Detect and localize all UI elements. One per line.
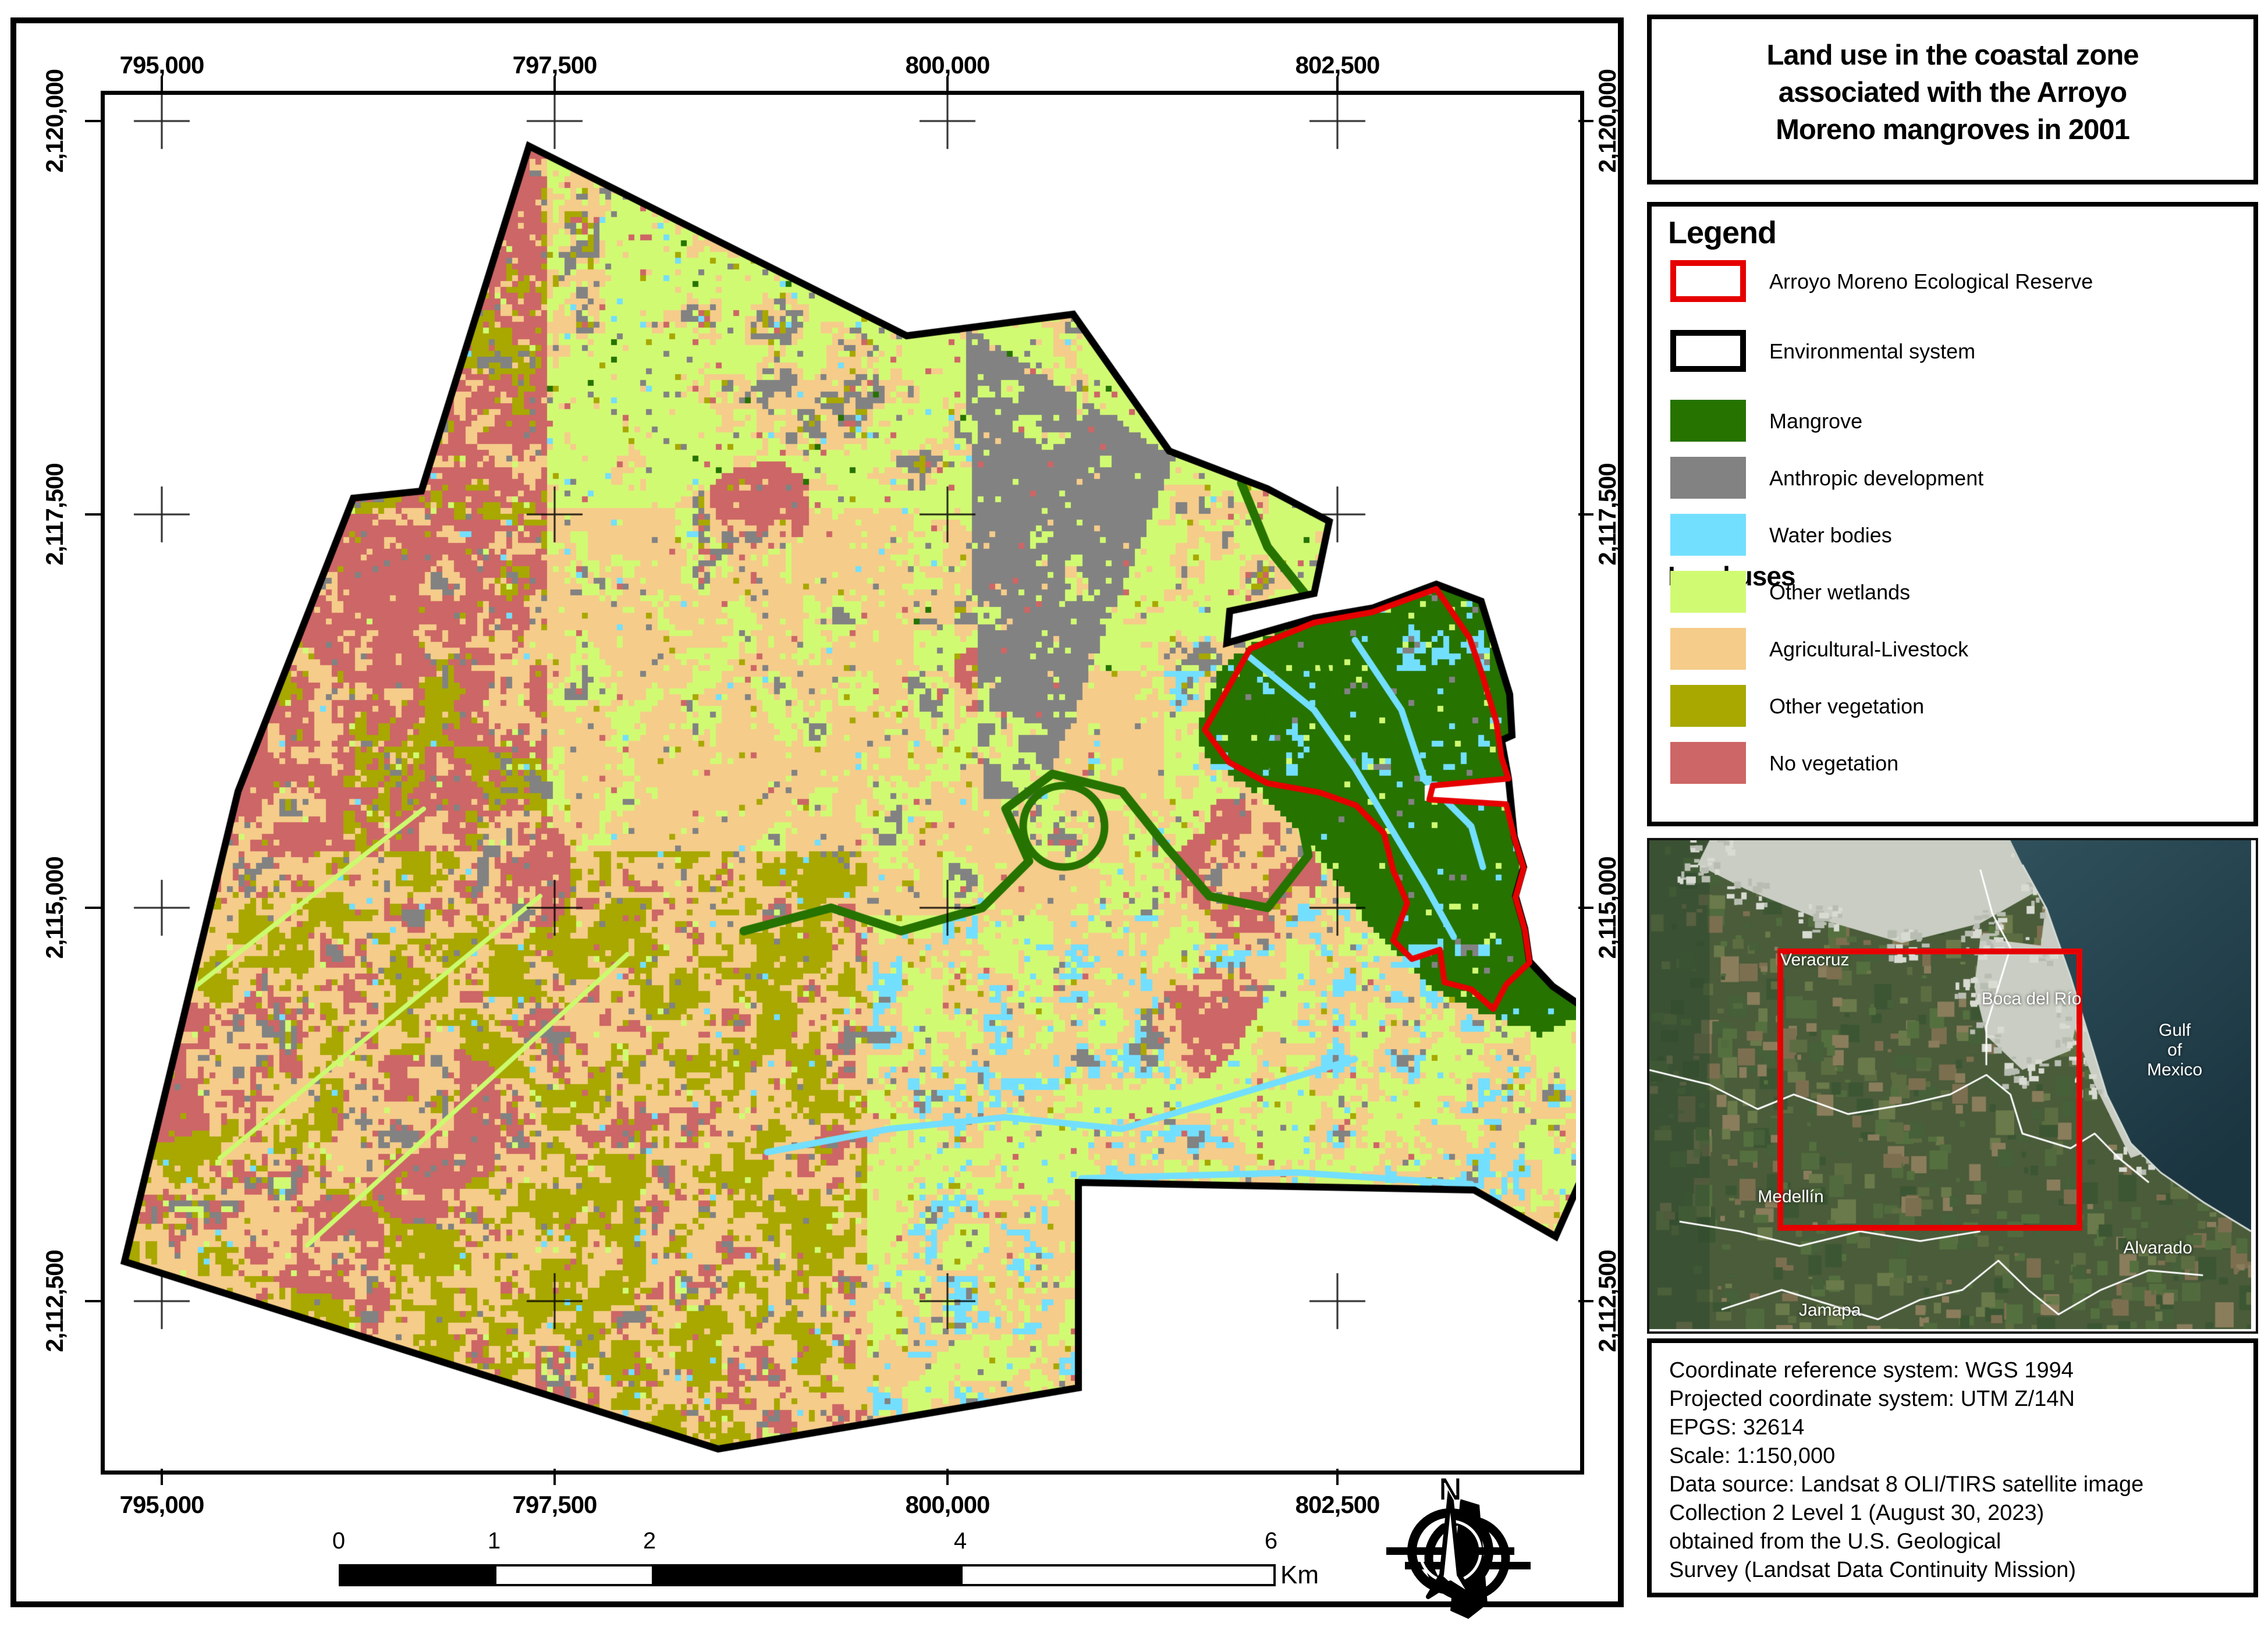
y-axis-label-right: 2,112,500 xyxy=(1593,1250,1621,1352)
legend-item-label: Other vegetation xyxy=(1769,694,1924,719)
x-axis-label-bottom: 795,000 xyxy=(120,1491,204,1519)
scale-bar-unit: Km xyxy=(1280,1561,1319,1590)
graticule-tick xyxy=(946,77,949,92)
inset-place-label: Medellín xyxy=(1758,1187,1823,1207)
y-axis-label-right: 2,115,000 xyxy=(1593,857,1621,959)
credits-line: EPGS: 32614 xyxy=(1669,1415,1804,1440)
page-title-line: Land use in the coastal zone xyxy=(1652,37,2253,74)
legend-item: Arroyo Moreno Ecological Reserve xyxy=(1670,260,2241,303)
y-axis-label-left: 2,112,500 xyxy=(41,1250,69,1352)
legend-item: Anthropic development xyxy=(1670,457,2241,500)
credits-line: obtained from the U.S. Geological xyxy=(1669,1529,2001,1554)
y-axis-label-right: 2,120,000 xyxy=(1593,69,1621,173)
scale-bar-segment xyxy=(652,1566,963,1584)
scale-bar-segment xyxy=(496,1566,652,1584)
page-title-line: Moreno mangroves in 2001 xyxy=(1652,111,2253,148)
legend-swatch-outline xyxy=(1670,330,1746,372)
scale-bar-segment xyxy=(963,1566,1273,1584)
legend-item: Water bodies xyxy=(1670,514,2241,557)
legend-swatch-fill xyxy=(1670,514,1746,556)
scale-bar-outline xyxy=(339,1564,1276,1586)
y-axis-label-left: 2,117,500 xyxy=(41,463,69,566)
legend-item-label: Agricultural-Livestock xyxy=(1769,637,1968,662)
graticule-tick xyxy=(553,77,556,92)
legend-item: Agricultural-Livestock xyxy=(1670,628,2241,671)
graticule-tick xyxy=(161,1469,163,1485)
scale-bar-number: 1 xyxy=(488,1528,501,1554)
credits-line: Data source: Landsat 8 OLI/TIRS satellit… xyxy=(1669,1472,2143,1497)
graticule-tick xyxy=(85,907,102,909)
credits-line: Projected coordinate system: UTM Z/14N xyxy=(1669,1387,2075,1412)
legend-item: No vegetation xyxy=(1670,742,2241,785)
legend-item-label: Anthropic development xyxy=(1769,466,1983,491)
main-map-panel: 795,000795,000797,500797,500800,000800,0… xyxy=(10,17,1624,1607)
legend-item-label: Water bodies xyxy=(1769,523,1892,548)
graticule-tick xyxy=(1336,77,1339,92)
graticule-tick xyxy=(161,77,163,92)
scale-bar-number: 4 xyxy=(954,1528,967,1554)
graticule-tick xyxy=(85,1300,102,1302)
x-axis-label-top: 795,000 xyxy=(120,51,204,79)
inset-place-label: Boca del Río xyxy=(1982,989,2082,1009)
legend-swatch-fill xyxy=(1670,571,1746,613)
legend-box: Legend Arroyo Moreno Ecological ReserveE… xyxy=(1647,202,2258,826)
inset-place-label: Veracruz xyxy=(1780,950,1849,970)
inset-locator-map: VeracruzBoca del RíoGulf of MexicoMedell… xyxy=(1647,838,2258,1334)
legend-item: Environmental system xyxy=(1670,330,2241,373)
graticule-tick xyxy=(1578,120,1593,122)
legend-swatch-fill xyxy=(1670,628,1746,670)
graticule-tick xyxy=(85,120,102,122)
scale-bar-segment xyxy=(341,1566,496,1584)
graticule-tick xyxy=(553,1469,556,1485)
legend-item-label: Environmental system xyxy=(1769,339,1975,364)
legend-swatch-fill xyxy=(1670,742,1746,784)
credits-box: Coordinate reference system: WGS 1994Pro… xyxy=(1647,1338,2258,1597)
graticule-tick xyxy=(1336,1469,1339,1485)
inset-place-label: Alvarado xyxy=(2124,1238,2192,1258)
legend-swatch-fill xyxy=(1670,685,1746,727)
inset-place-label: Jamapa xyxy=(1799,1301,1861,1320)
graticule-tick xyxy=(1578,513,1593,516)
legend-swatch-fill xyxy=(1670,400,1746,442)
legend-swatch-outline xyxy=(1670,260,1746,302)
scale-bar-number: 2 xyxy=(643,1528,656,1554)
y-axis-label-left: 2,115,000 xyxy=(41,857,69,959)
graticule-tick xyxy=(85,513,102,516)
credits-line: Collection 2 Level 1 (August 30, 2023) xyxy=(1669,1501,2044,1526)
legend-item: Other wetlands xyxy=(1670,571,2241,614)
x-axis-label-top: 800,000 xyxy=(906,51,990,79)
x-axis-label-top: 802,500 xyxy=(1296,51,1380,79)
legend-item-label: Other wetlands xyxy=(1769,580,1910,605)
y-axis-label-left: 2,120,000 xyxy=(41,69,69,173)
legend-item: Mangrove xyxy=(1670,400,2241,443)
legend-header: Legend xyxy=(1668,215,1776,251)
x-axis-label-bottom: 800,000 xyxy=(906,1491,990,1519)
legend-item-label: Arroyo Moreno Ecological Reserve xyxy=(1769,269,2093,294)
scale-bar-number: 6 xyxy=(1265,1528,1277,1554)
title-box: Land use in the coastal zoneassociated w… xyxy=(1647,15,2258,184)
land-use-map-canvas xyxy=(105,95,1576,1466)
y-axis-label-right: 2,117,500 xyxy=(1593,463,1621,566)
legend-item: Other vegetation xyxy=(1670,685,2241,728)
north-arrow-compass-icon: N xyxy=(1385,1477,1531,1634)
page-title-line: associated with the Arroyo xyxy=(1652,74,2253,111)
inset-place-label: Gulf of Mexico xyxy=(2147,1021,2202,1080)
graticule-tick xyxy=(1578,907,1593,909)
x-axis-label-bottom: 802,500 xyxy=(1296,1491,1380,1519)
north-label: N xyxy=(1439,1477,1462,1507)
legend-item-label: No vegetation xyxy=(1769,751,1898,776)
graticule-tick xyxy=(1578,1300,1593,1302)
legend-item-label: Mangrove xyxy=(1769,409,1862,434)
legend-swatch-fill xyxy=(1670,457,1746,499)
credits-line: Survey (Landsat Data Continuity Mission) xyxy=(1669,1558,2076,1583)
x-axis-label-bottom: 797,500 xyxy=(513,1491,597,1519)
page-title: Land use in the coastal zoneassociated w… xyxy=(1652,19,2253,148)
scale-bar-number: 0 xyxy=(332,1528,345,1554)
page: { "title": {"lines": ["Land use in the c… xyxy=(0,0,2268,1621)
credits-line: Coordinate reference system: WGS 1994 xyxy=(1669,1358,2074,1383)
graticule-tick xyxy=(946,1469,949,1485)
credits-line: Scale: 1:150,000 xyxy=(1669,1444,1835,1469)
x-axis-label-top: 797,500 xyxy=(513,51,597,79)
